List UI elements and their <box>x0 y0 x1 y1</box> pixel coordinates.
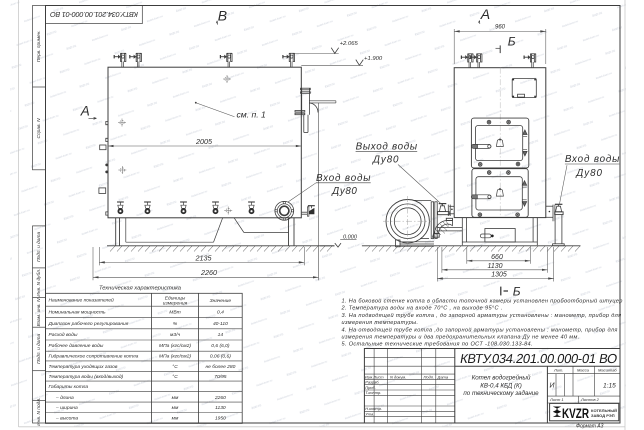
svg-text:Масса: Масса <box>577 368 590 373</box>
svg-text:Ду80: Ду80 <box>575 168 602 179</box>
svg-text:3. На подводящей трубе котла: 3. На подводящей трубе котла , до запорн… <box>342 312 622 319</box>
svg-text:Б: Б <box>508 35 516 49</box>
svg-text:Т.контр.: Т.контр. <box>365 390 381 395</box>
svg-text:Ду80: Ду80 <box>331 186 357 197</box>
svg-text:+2.065: +2.065 <box>340 41 359 47</box>
svg-text:Листов 2: Листов 2 <box>580 397 600 402</box>
svg-text:А: А <box>80 103 90 118</box>
svg-text:Диапазон рабочего регулировани: Диапазон рабочего регулирования <box>48 321 129 327</box>
svg-text:Лит.: Лит. <box>553 368 563 373</box>
svg-text:Котел водогрейный: Котел водогрейный <box>472 375 531 382</box>
svg-text:Единицы: Единицы <box>165 296 186 302</box>
svg-text:1130: 1130 <box>215 405 226 411</box>
svg-text:Температура воды (вход/выход): Температура воды (вход/выход) <box>49 374 124 380</box>
svg-text:Взам. инв. N: Взам. инв. N <box>36 298 42 326</box>
svg-text:КВТУ.034.201.00.000-01 ВО: КВТУ.034.201.00.000-01 ВО <box>459 351 619 366</box>
svg-text:В: В <box>218 7 227 23</box>
svg-text:не более 280: не более 280 <box>205 364 235 370</box>
svg-text:Вход воды: Вход воды <box>565 154 620 165</box>
svg-text:40-110: 40-110 <box>213 321 228 327</box>
svg-text:мм: мм <box>172 396 179 401</box>
svg-text:Номинальная мощность: Номинальная мощность <box>49 310 107 316</box>
svg-text:1. На боковой стенке котла в: 1. На боковой стенке котла в области топ… <box>342 298 623 305</box>
svg-text:Расход воды: Расход воды <box>49 332 78 338</box>
svg-text:Инв. N дубл.: Инв. N дубл. <box>36 269 42 297</box>
svg-text:А: А <box>480 6 490 22</box>
svg-text:Температура уходящих газов: Температура уходящих газов <box>49 364 118 370</box>
svg-text:Гидравлическое сопротивление к: Гидравлическое сопротивление котла <box>49 354 139 360</box>
svg-text:Б: Б <box>513 285 521 299</box>
svg-text:мм: мм <box>172 406 179 411</box>
svg-text:2. Температура воды на входе: 2. Температура воды на входе 70°С , на в… <box>341 306 503 312</box>
svg-text:КВ-0,4 КБД (К): КВ-0,4 КБД (К) <box>480 382 522 389</box>
svg-text:измерения: измерения <box>163 302 188 307</box>
svg-text:м3/ч: м3/ч <box>170 332 180 338</box>
svg-text:Габариты котла: Габариты котла <box>49 384 89 390</box>
svg-text:70/95: 70/95 <box>214 374 227 380</box>
svg-text:14: 14 <box>218 332 224 338</box>
svg-text:2260: 2260 <box>200 268 217 277</box>
svg-text:Подп. и дата: Подп. и дата <box>36 232 42 262</box>
svg-text:измерения температуры.: измерения температуры. <box>342 320 419 326</box>
svg-text:Проб.: Проб. <box>365 385 376 390</box>
svg-text:измерения температуры и два пр: измерения температуры и два предохраните… <box>342 335 580 341</box>
svg-text:Справ. N: Справ. N <box>36 118 42 139</box>
svg-text:Масштаб: Масштаб <box>598 368 617 373</box>
svg-text:– высота: – высота <box>55 417 78 422</box>
svg-text:°С: °С <box>172 374 178 380</box>
svg-text:МВт: МВт <box>169 310 180 316</box>
svg-text:Утв.: Утв. <box>365 412 374 417</box>
svg-text:2260: 2260 <box>214 395 226 401</box>
svg-text:1130: 1130 <box>487 263 502 270</box>
svg-text:Изм.Лист: Изм.Лист <box>365 374 384 379</box>
svg-text:МПа (кгс/см2): МПа (кгс/см2) <box>159 343 191 349</box>
svg-text:Значение: Значение <box>210 298 232 304</box>
svg-text:по техническому задание: по техническому задание <box>463 390 539 397</box>
svg-text:– ширина: – ширина <box>55 406 78 411</box>
svg-text:Вход воды: Вход воды <box>316 173 371 184</box>
svg-text:Инв. N подл.: Инв. N подл. <box>36 398 42 426</box>
svg-text:мм: мм <box>172 417 179 422</box>
svg-text:660: 660 <box>491 254 503 261</box>
svg-text:Разраб.: Разраб. <box>365 380 379 385</box>
svg-text:см. п. 1: см. п. 1 <box>237 110 266 120</box>
svg-text:ЗАВОД РЭП: ЗАВОД РЭП <box>591 413 615 418</box>
svg-text:1:15: 1:15 <box>603 383 616 390</box>
svg-text:2135: 2135 <box>195 253 213 262</box>
svg-text:0,4: 0,4 <box>217 310 224 316</box>
svg-text:Перв. примен.: Перв. примен. <box>36 30 42 62</box>
svg-text:Н.контр.: Н.контр. <box>365 406 382 411</box>
svg-text:4. На отводящей трубе котла ,: 4. На отводящей трубе котла ,до запорной… <box>342 326 618 333</box>
svg-text:%: % <box>173 321 178 327</box>
svg-text:Дата: Дата <box>437 374 449 379</box>
svg-text:– длина: – длина <box>55 395 74 401</box>
svg-text:0,06 (0,6): 0,06 (0,6) <box>210 354 231 360</box>
svg-text:1950: 1950 <box>215 416 226 422</box>
svg-text:Рабочее давление воды: Рабочее давление воды <box>49 343 104 349</box>
svg-text:KVZR: KVZR <box>562 406 589 421</box>
svg-text:+1.900: +1.900 <box>364 56 383 62</box>
svg-text:Формат А3: Формат А3 <box>576 423 604 429</box>
svg-text:2005: 2005 <box>195 137 213 146</box>
svg-text:°С: °С <box>172 364 178 370</box>
svg-text:Подп. и дата: Подп. и дата <box>36 334 42 364</box>
svg-text:0,6 (6,0): 0,6 (6,0) <box>211 343 230 349</box>
svg-text:Подп.: Подп. <box>424 374 435 379</box>
svg-text:960: 960 <box>495 25 506 31</box>
svg-text:МПа (кгс/см2): МПа (кгс/см2) <box>159 354 191 360</box>
svg-text:Ду80: Ду80 <box>372 154 399 165</box>
svg-text:КВТУ.034.201.00.000-01 ВО: КВТУ.034.201.00.000-01 ВО <box>50 10 138 19</box>
svg-text:Лист 1: Лист 1 <box>549 397 564 402</box>
svg-text:Наименование показателей: Наименование показателей <box>49 297 114 304</box>
svg-text:Выход воды: Выход воды <box>356 142 418 153</box>
svg-text:Техническая характеристика: Техническая характеристика <box>99 286 182 292</box>
svg-text:1305: 1305 <box>491 271 507 278</box>
svg-text:5. Остальные технические треб: 5. Остальные технические требования по О… <box>342 342 533 348</box>
svg-text:N докум.: N докум. <box>390 374 406 379</box>
